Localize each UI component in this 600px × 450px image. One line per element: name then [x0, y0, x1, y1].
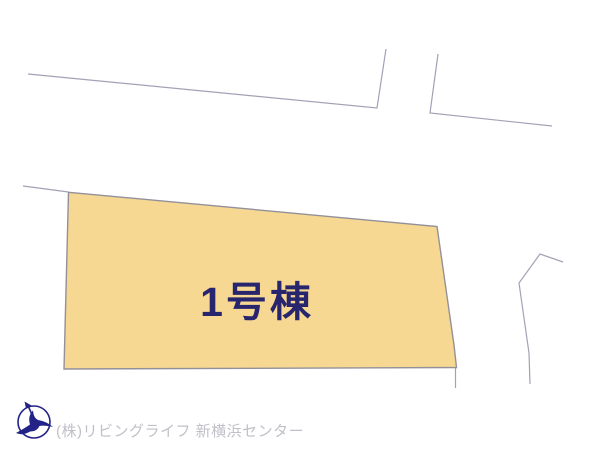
road-line-top-right: [430, 54, 552, 126]
boundary-line-left: [23, 186, 69, 192]
road-line-top-left: [28, 49, 386, 108]
company-name: (株)リビングライフ 新横浜センター: [56, 420, 304, 441]
site-plan-canvas: 1号棟 (株)リビングライフ 新横浜センター: [0, 0, 600, 450]
boundary-polyline-right: [519, 254, 563, 384]
footer: (株)リビングライフ 新横浜センター: [0, 393, 600, 450]
lot-label: 1号棟: [131, 279, 383, 325]
bird-compass-logo-icon: [10, 396, 58, 446]
site-plan-drawing: [0, 0, 600, 450]
